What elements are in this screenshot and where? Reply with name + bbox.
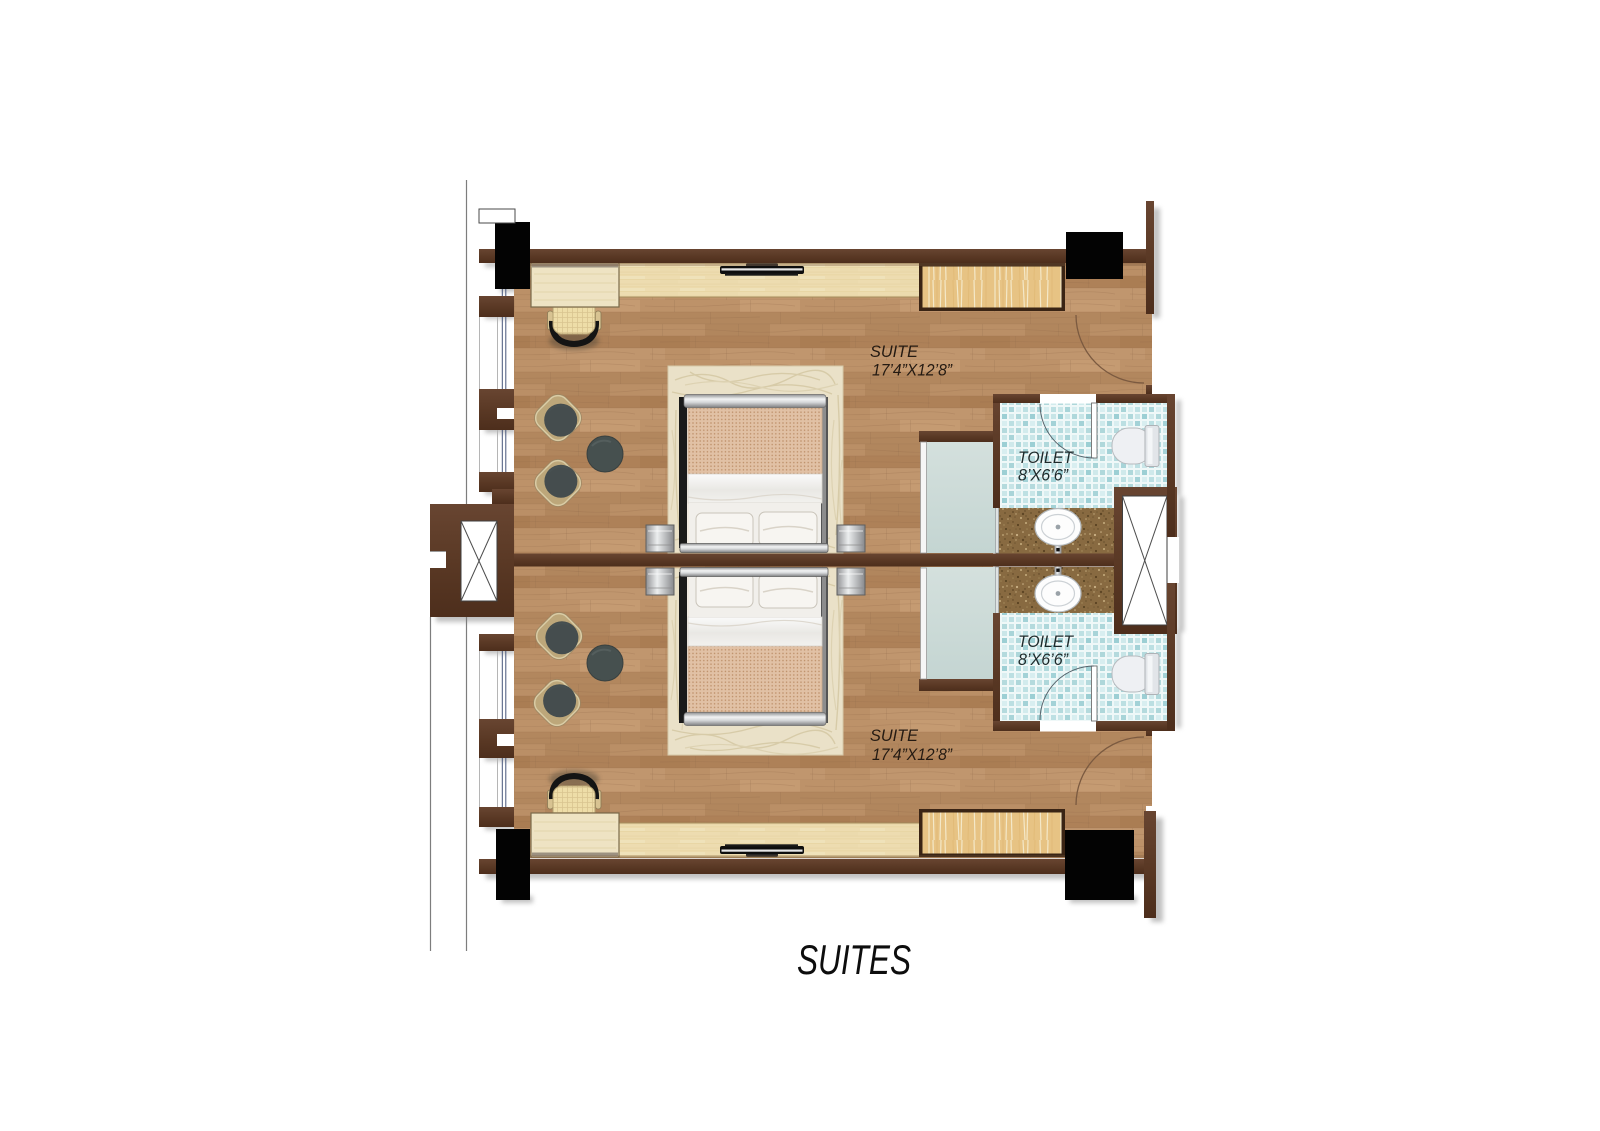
svg-text:17’4”X12’8”: 17’4”X12’8”: [872, 361, 953, 380]
svg-text:TOILET: TOILET: [1018, 449, 1075, 467]
svg-text:8’X6’6”: 8’X6’6”: [1018, 467, 1069, 485]
svg-text:17’4”X12’8”: 17’4”X12’8”: [872, 745, 953, 764]
svg-text:TOILET: TOILET: [1018, 633, 1075, 651]
svg-text:8’X6’6”: 8’X6’6”: [1018, 651, 1069, 669]
svg-text:SUITE: SUITE: [870, 342, 919, 361]
svg-text:SUITE: SUITE: [870, 726, 919, 745]
svg-text:SUITES: SUITES: [797, 936, 911, 983]
